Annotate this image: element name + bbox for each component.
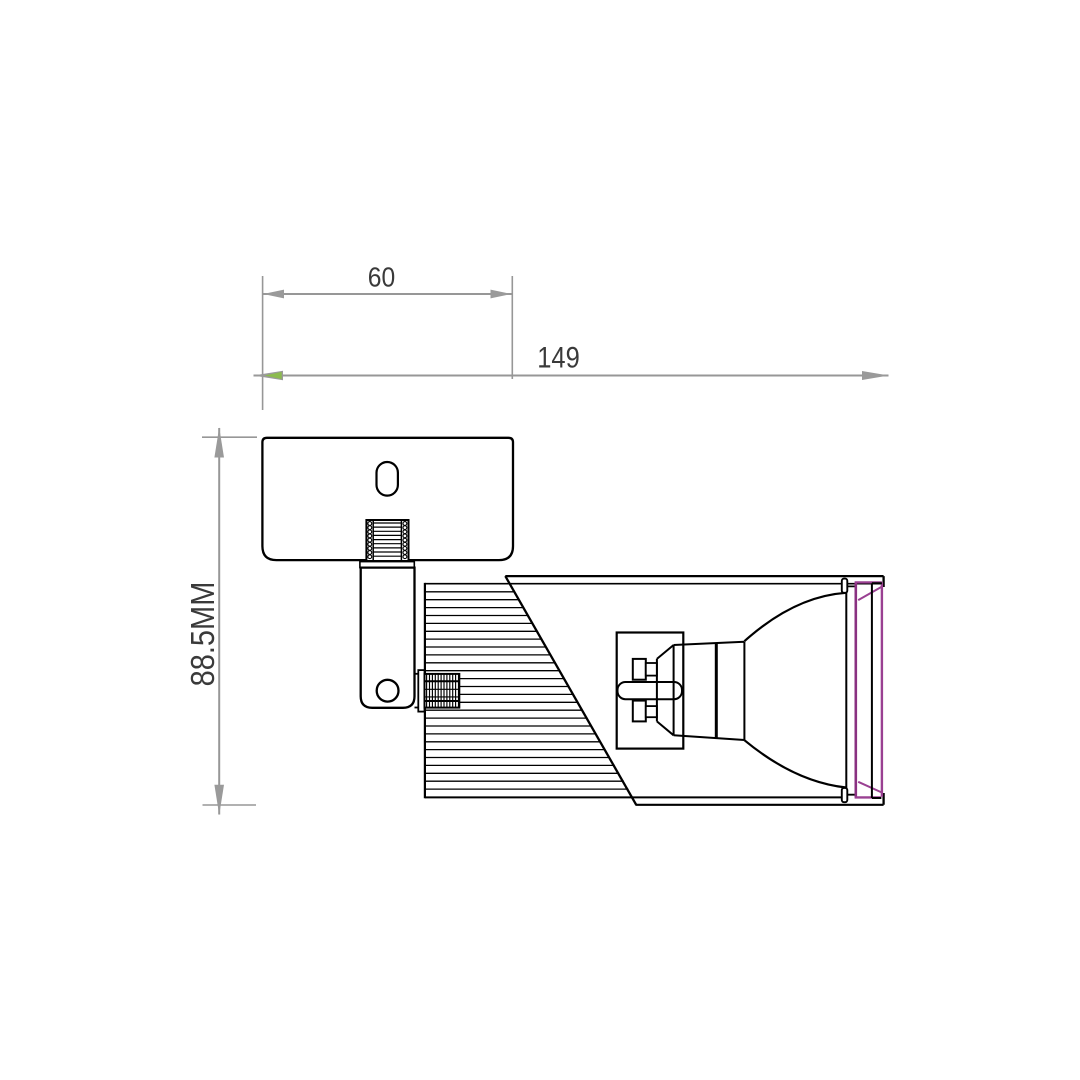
svg-text:88.5MM: 88.5MM	[184, 582, 221, 687]
svg-text:60: 60	[368, 261, 395, 293]
svg-text:149: 149	[537, 341, 580, 374]
